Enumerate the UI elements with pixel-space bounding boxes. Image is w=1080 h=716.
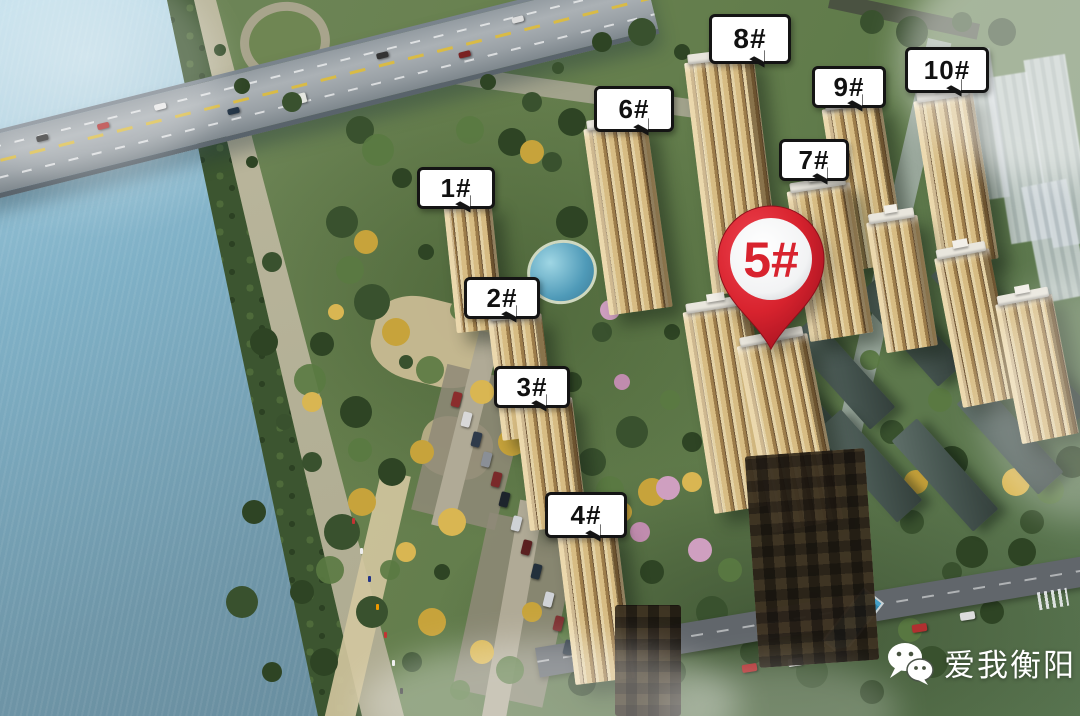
massing-block (892, 418, 999, 531)
pedestrian (400, 688, 403, 694)
label-text: 1# (441, 173, 472, 204)
tree-cluster-pink (0, 0, 20, 20)
pedestrian (368, 576, 371, 582)
car (154, 102, 167, 111)
watermark-text: 爱我衡阳 (944, 640, 1076, 685)
building-label-2: 2# (464, 277, 540, 319)
haze (660, 660, 900, 716)
label-text: 8# (733, 23, 766, 55)
car (511, 15, 524, 24)
pedestrian (384, 632, 387, 638)
label-text: 6# (619, 94, 650, 125)
building-label-1: 1# (417, 167, 495, 209)
parked-car (552, 615, 564, 632)
bus (282, 92, 308, 108)
context-building-roof (828, 0, 980, 40)
label-text: 4# (571, 500, 602, 531)
location-pin-5: 5# (709, 200, 833, 352)
car (911, 623, 927, 633)
wechat-icon (886, 641, 934, 685)
pedestrian (392, 660, 395, 666)
aerial-masterplan-rendering: 1# 2# 3# 4# 6# 7# 8# 9# 10# 5# (0, 0, 1080, 716)
building-label-4: 4# (545, 492, 627, 538)
car (376, 51, 389, 60)
pedestrian (360, 548, 363, 554)
car (36, 134, 49, 143)
building-label-9: 9# (812, 66, 886, 108)
pedestrian (352, 518, 355, 524)
label-text: 7# (799, 145, 830, 176)
label-text: 2# (487, 283, 518, 314)
building-label-10: 10# (905, 47, 989, 93)
label-text: 9# (834, 72, 865, 103)
building-label-3: 3# (494, 366, 570, 408)
label-text: 3# (517, 372, 548, 403)
car (227, 107, 240, 116)
car (97, 122, 110, 131)
crosswalk (1037, 588, 1069, 610)
pedestrian (376, 604, 379, 610)
pin-graphic: 5# (709, 200, 833, 352)
parked-car (498, 491, 510, 508)
censored-area (615, 605, 681, 716)
building-label-8: 8# (709, 14, 791, 64)
car (959, 611, 975, 621)
building-label-6: 6# (594, 86, 674, 132)
car (741, 663, 757, 673)
building-label-7: 7# (779, 139, 849, 181)
watermark: 爱我衡阳 (886, 640, 1076, 685)
censored-area (745, 448, 879, 668)
building-tower-6 (583, 120, 673, 315)
car (458, 50, 471, 59)
label-text: 10# (924, 55, 970, 86)
pin-text: 5# (743, 232, 799, 288)
